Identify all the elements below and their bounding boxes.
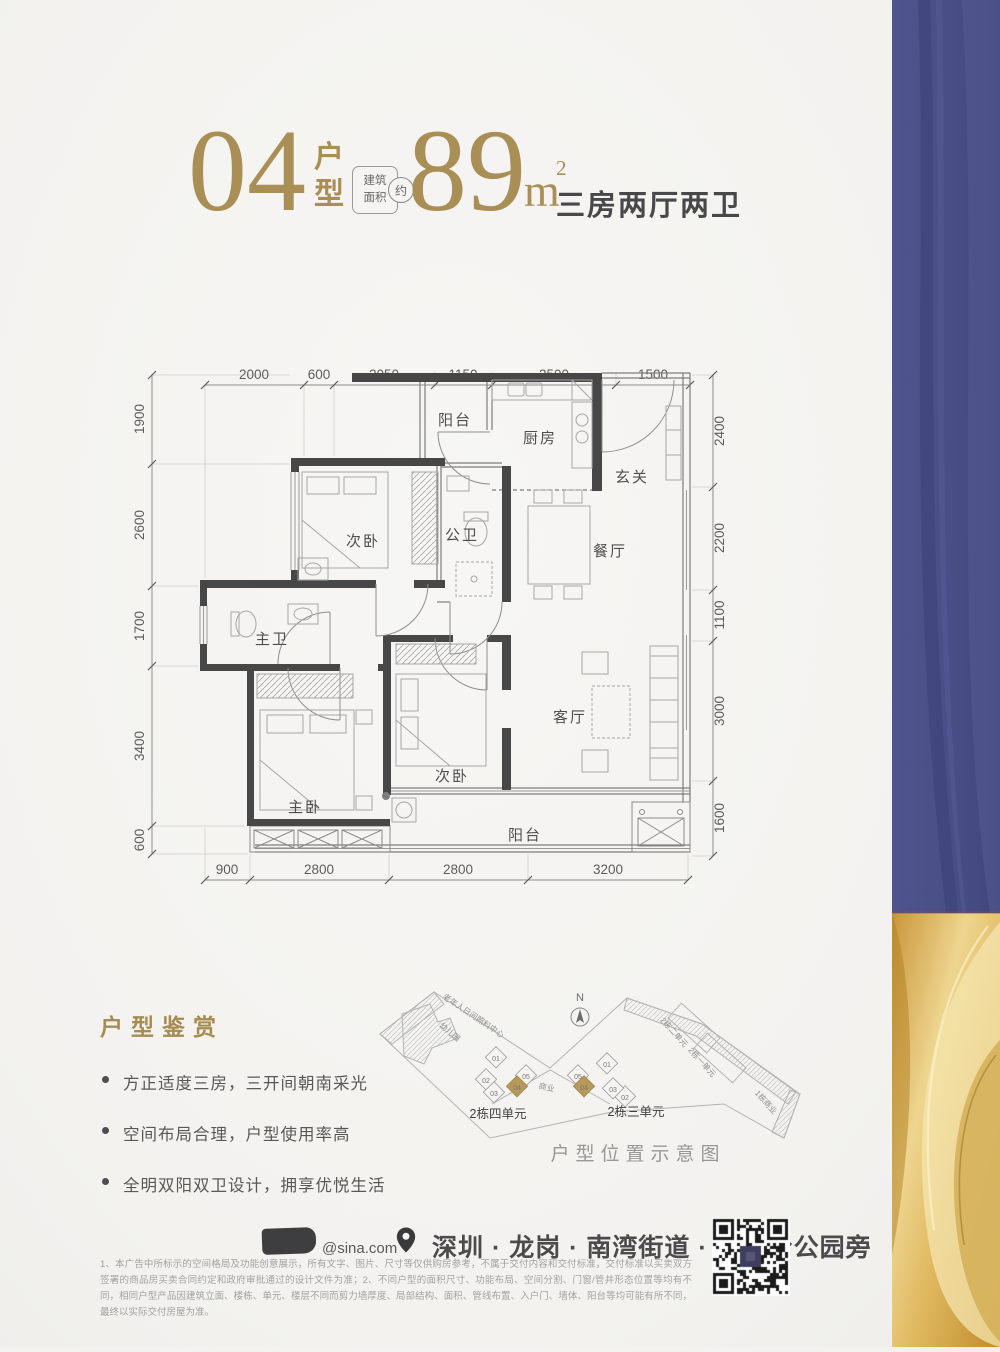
room-entry: 玄关 [615,469,649,486]
bay-window [250,826,390,852]
svg-text:3400: 3400 [132,731,147,761]
bullet-dot [102,1076,109,1083]
feature-item: 方正适度三房，三开间朝南采光 [100,1070,386,1094]
area-exponent: 2 [556,158,567,179]
room-balcony-bottom: 阳台 [508,827,542,844]
svg-text:2800: 2800 [443,862,473,877]
furniture [231,380,681,822]
room-bedroom-master: 主卧 [288,799,322,816]
cluster-left-label: 2栋四单元 [470,1106,527,1121]
room-dining: 餐厅 [593,543,627,560]
dimension-labels: 2000 600 2050 1150 2500 1500 1900 2600 1… [132,367,727,877]
svg-text:600: 600 [132,829,147,852]
north-compass: N [571,992,589,1026]
svg-text:2400: 2400 [712,416,727,446]
svg-text:01: 01 [603,1062,611,1069]
siteplan-caption: 户型位置示意图 [550,1143,725,1165]
compass-needle [576,1009,584,1023]
feature-item: 全明双阳双卫设计，拥享优悦生活 [100,1172,386,1196]
disclaimer-text: 1、本广告中所标示的空间格局及功能创意展示，所有文字、图片、尺寸等仅供购房参考，… [100,1257,692,1322]
svg-text:1900: 1900 [132,404,147,434]
svg-text:2200: 2200 [712,523,727,553]
room-bedroom-top: 次卧 [346,533,380,550]
commerce-label: 商业 [538,1081,556,1094]
brand-logo [262,1227,317,1255]
feature-item: 空间布局合理，户型使用率高 [100,1121,386,1145]
area-unit: m [524,168,560,214]
svg-text:3000: 3000 [712,696,727,726]
north-label: N [576,992,584,1004]
location-pin-icon [396,1226,416,1259]
siteplan: 01 02 03 04 05 05 04 03 02 01 幼儿园 老年人日间照… [372,986,808,1168]
room-living: 客厅 [553,709,587,726]
svg-text:03: 03 [490,1091,498,1098]
decorative-band [892,0,1000,1347]
svg-text:2800: 2800 [304,862,334,877]
svg-text:03: 03 [609,1087,617,1094]
bullet-dot [102,1127,109,1134]
features-list: 方正适度三房，三开间朝南采光 空间布局合理，户型使用率高 全明双阳双卫设计，拥享… [100,1070,386,1196]
social-handle: @sina.com [322,1240,397,1257]
svg-text:04: 04 [580,1085,588,1092]
svg-text:1600: 1600 [712,803,727,833]
svg-text:1100: 1100 [712,600,727,629]
svg-text:02: 02 [482,1078,490,1085]
floorplan: 2000 600 2050 1150 2500 1500 1900 2600 1… [120,280,740,960]
room-bath-master: 主卫 [255,631,289,648]
qr-code [712,1218,790,1296]
svg-text:3200: 3200 [593,862,623,877]
svg-text:1700: 1700 [132,611,147,641]
svg-text:02: 02 [621,1095,629,1102]
bullet-dot [102,1178,109,1185]
features-title: 户型鉴赏 [100,1008,386,1042]
rooms-description: 三房两厅两卫 [556,182,742,224]
svg-text:05: 05 [522,1074,530,1081]
svg-text:600: 600 [308,367,331,382]
room-bath-public: 公卫 [445,527,479,544]
floorplan-svg: 2000 600 2050 1150 2500 1500 1900 2600 1… [120,280,740,960]
page-title-block: 04 [188,112,306,230]
room-balcony-top: 阳台 [438,412,472,429]
room-bedroom-bottom: 次卧 [435,768,469,785]
svg-text:2600: 2600 [132,510,147,540]
svg-text:900: 900 [216,862,239,877]
svg-text:2000: 2000 [239,367,269,382]
unit-number: 04 [188,105,306,236]
svg-text:05: 05 [574,1074,582,1081]
siteplan-svg: 01 02 03 04 05 05 04 03 02 01 幼儿园 老年人日间照… [372,986,808,1168]
features-section: 户型鉴赏 方正适度三房，三开间朝南采光 空间布局合理，户型使用率高 全明双阳双卫… [100,1008,386,1223]
room-kitchen: 厨房 [523,430,557,447]
svg-text:04: 04 [513,1085,521,1092]
unit-type-label: 户 型 [314,143,344,210]
unit1-label: 2栋一单元 [686,1045,718,1079]
svg-text:01: 01 [492,1056,500,1063]
area-value: 89 [408,112,526,230]
cluster-right-label: 2栋三单元 [608,1104,665,1119]
svg-text:1500: 1500 [638,367,668,382]
site-outline [380,992,800,1138]
